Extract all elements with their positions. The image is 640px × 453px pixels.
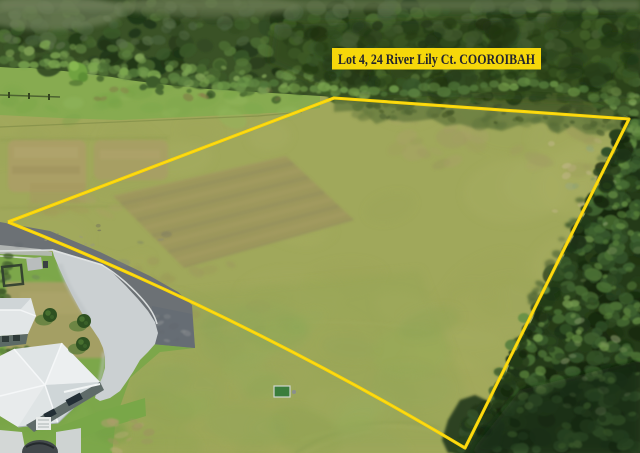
svg-text:Lot 4, 24 River Lily Ct. COORO: Lot 4, 24 River Lily Ct. COOROIBAH	[338, 51, 535, 68]
